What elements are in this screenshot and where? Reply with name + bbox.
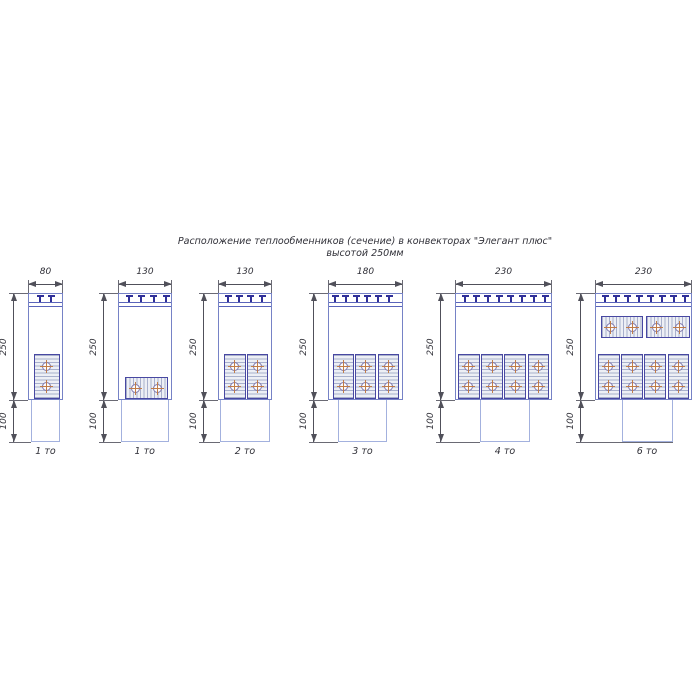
pipe-circle-icon: [628, 323, 637, 332]
grille-line: [596, 306, 691, 307]
extension-line: [309, 293, 328, 294]
grille-tooth-icon: [138, 295, 145, 297]
pipe-circle-icon: [384, 362, 393, 371]
extension-line: [271, 280, 272, 293]
pipe-circle-icon: [628, 362, 637, 371]
dim-arrow-icon: [438, 293, 444, 301]
dim-arrow-icon: [201, 400, 207, 408]
duct-height-dim-label: 100: [89, 412, 99, 429]
extension-line: [309, 442, 338, 443]
extension-line: [436, 400, 455, 401]
grille-tooth-icon: [364, 295, 371, 297]
dim-arrow-icon: [578, 392, 584, 400]
height-dim-label: 250: [566, 338, 576, 355]
air-duct: [121, 400, 170, 442]
height-dim-label: 250: [89, 338, 99, 355]
dim-arrow-icon: [28, 281, 36, 287]
extension-line: [436, 293, 455, 294]
width-dim-line: [595, 284, 692, 285]
drawing-title-line2: высотой 250мм: [20, 248, 700, 260]
grille-line: [29, 302, 62, 303]
height-dim-line: [313, 293, 314, 442]
grille-line: [456, 306, 551, 307]
dim-arrow-icon: [101, 293, 107, 301]
pipe-circle-icon: [675, 323, 684, 332]
grille-tooth-icon: [259, 295, 266, 297]
dim-arrow-icon: [578, 400, 584, 408]
extension-line: [691, 280, 692, 293]
grille-tooth-icon: [247, 295, 254, 297]
grille-tooth-icon: [647, 295, 654, 297]
pipe-circle-icon: [153, 384, 162, 393]
extension-line: [551, 280, 552, 293]
air-duct: [622, 400, 673, 442]
dim-arrow-icon: [578, 434, 584, 442]
extension-line: [9, 442, 31, 443]
extension-line: [218, 280, 219, 293]
extension-line: [99, 293, 118, 294]
dim-arrow-icon: [11, 400, 17, 408]
height-dim-label: 250: [189, 338, 199, 355]
grille-tooth-icon: [682, 295, 689, 297]
extension-line: [199, 442, 220, 443]
grille-line: [219, 302, 271, 303]
width-dim-label: 230: [635, 267, 652, 277]
extension-line: [576, 400, 595, 401]
grille-tooth-icon: [386, 295, 393, 297]
dim-arrow-icon: [201, 293, 207, 301]
grille-tooth-icon: [37, 295, 44, 297]
dim-arrow-icon: [595, 281, 603, 287]
extension-line: [576, 442, 673, 443]
extension-line: [328, 280, 329, 293]
dim-arrow-icon: [311, 392, 317, 400]
extension-line: [99, 400, 118, 401]
grille-tooth-icon: [126, 295, 133, 297]
air-duct: [480, 400, 530, 442]
grille-tooth-icon: [163, 295, 170, 297]
grille-tooth-icon: [353, 295, 360, 297]
grille-tooth-icon: [150, 295, 157, 297]
grille-tooth-icon: [636, 295, 643, 297]
extension-line: [309, 400, 328, 401]
grille-tooth-icon: [48, 295, 55, 297]
pipe-circle-icon: [628, 382, 637, 391]
dim-arrow-icon: [438, 392, 444, 400]
grille-tooth-icon: [225, 295, 232, 297]
pipe-circle-icon: [651, 362, 660, 371]
grille-tooth-icon: [613, 295, 620, 297]
dim-arrow-icon: [118, 281, 126, 287]
height-dim-label: 250: [299, 338, 309, 355]
extension-line: [576, 293, 595, 294]
grille-tooth-icon: [332, 295, 339, 297]
grille-line: [29, 306, 62, 307]
diagram-caption: 2 то: [235, 446, 255, 457]
diagram-caption: 1 то: [135, 446, 155, 457]
grille-tooth-icon: [507, 295, 514, 297]
width-dim-line: [455, 284, 552, 285]
extension-line: [436, 442, 480, 443]
width-dim-label: 180: [357, 267, 374, 277]
grille-tooth-icon: [462, 295, 469, 297]
grille-tooth-icon: [542, 295, 549, 297]
drawing-title: Расположение теплообменников (сечение) в…: [20, 236, 700, 260]
dim-arrow-icon: [101, 400, 107, 408]
dim-arrow-icon: [201, 434, 207, 442]
width-dim-label: 130: [136, 267, 153, 277]
grille-tooth-icon: [236, 295, 243, 297]
pipe-circle-icon: [488, 362, 497, 371]
extension-line: [455, 280, 456, 293]
extension-line: [9, 293, 28, 294]
drawing-title-line1: Расположение теплообменников (сечение) в…: [20, 236, 700, 248]
dim-arrow-icon: [455, 281, 463, 287]
pipe-circle-icon: [131, 384, 140, 393]
dim-arrow-icon: [311, 293, 317, 301]
extension-line: [118, 280, 119, 293]
extension-line: [402, 280, 403, 293]
duct-height-dim-label: 100: [0, 412, 9, 429]
grille-tooth-icon: [624, 295, 631, 297]
diagram-caption: 6 то: [637, 446, 657, 457]
air-duct: [338, 400, 387, 442]
grille-tooth-icon: [602, 295, 609, 297]
dim-arrow-icon: [101, 434, 107, 442]
width-dim-label: 80: [40, 267, 51, 277]
grille-line: [596, 302, 691, 303]
dim-arrow-icon: [438, 434, 444, 442]
grille-tooth-icon: [473, 295, 480, 297]
extension-line: [62, 280, 63, 293]
extension-line: [99, 442, 121, 443]
grille-tooth-icon: [670, 295, 677, 297]
dim-arrow-icon: [578, 293, 584, 301]
extension-line: [28, 280, 29, 293]
height-dim-line: [103, 293, 104, 442]
dim-arrow-icon: [101, 392, 107, 400]
pipe-circle-icon: [652, 323, 661, 332]
pipe-circle-icon: [384, 382, 393, 391]
grille-tooth-icon: [484, 295, 491, 297]
grille-line: [119, 302, 171, 303]
grille-tooth-icon: [342, 295, 349, 297]
air-duct: [220, 400, 270, 442]
width-dim-line: [328, 284, 403, 285]
grille-line: [219, 306, 271, 307]
air-duct: [31, 400, 60, 442]
dim-arrow-icon: [311, 434, 317, 442]
grille-line: [329, 306, 402, 307]
pipe-circle-icon: [606, 323, 615, 332]
height-dim-label: 250: [426, 338, 436, 355]
height-dim-line: [13, 293, 14, 442]
dim-arrow-icon: [11, 293, 17, 301]
diagram-caption: 3 то: [352, 446, 372, 457]
grille-tooth-icon: [530, 295, 537, 297]
duct-height-dim-label: 100: [426, 412, 436, 429]
pipe-circle-icon: [339, 362, 348, 371]
diagram-caption: 1 то: [35, 446, 55, 457]
grille-tooth-icon: [659, 295, 666, 297]
extension-line: [595, 280, 596, 293]
duct-height-dim-label: 100: [566, 412, 576, 429]
pipe-circle-icon: [511, 362, 520, 371]
dim-arrow-icon: [201, 392, 207, 400]
height-dim-line: [580, 293, 581, 442]
grille-line: [329, 302, 402, 303]
dim-arrow-icon: [438, 400, 444, 408]
grille-tooth-icon: [519, 295, 526, 297]
width-dim-label: 130: [236, 267, 253, 277]
dim-arrow-icon: [311, 400, 317, 408]
duct-height-dim-label: 100: [299, 412, 309, 429]
diagram-caption: 4 то: [495, 446, 515, 457]
dim-arrow-icon: [11, 434, 17, 442]
grille-line: [456, 302, 551, 303]
dim-arrow-icon: [218, 281, 226, 287]
extension-line: [9, 400, 28, 401]
grille-tooth-icon: [496, 295, 503, 297]
dim-arrow-icon: [11, 392, 17, 400]
grille-line: [119, 306, 171, 307]
height-dim-line: [440, 293, 441, 442]
extension-line: [199, 400, 218, 401]
pipe-circle-icon: [488, 382, 497, 391]
width-dim-label: 230: [495, 267, 512, 277]
height-dim-line: [203, 293, 204, 442]
extension-line: [171, 280, 172, 293]
pipe-circle-icon: [339, 382, 348, 391]
height-dim-label: 250: [0, 338, 9, 355]
extension-line: [199, 293, 218, 294]
technical-drawing-canvas: Расположение теплообменников (сечение) в…: [0, 0, 700, 700]
grille-tooth-icon: [375, 295, 382, 297]
dim-arrow-icon: [328, 281, 336, 287]
duct-height-dim-label: 100: [189, 412, 199, 429]
